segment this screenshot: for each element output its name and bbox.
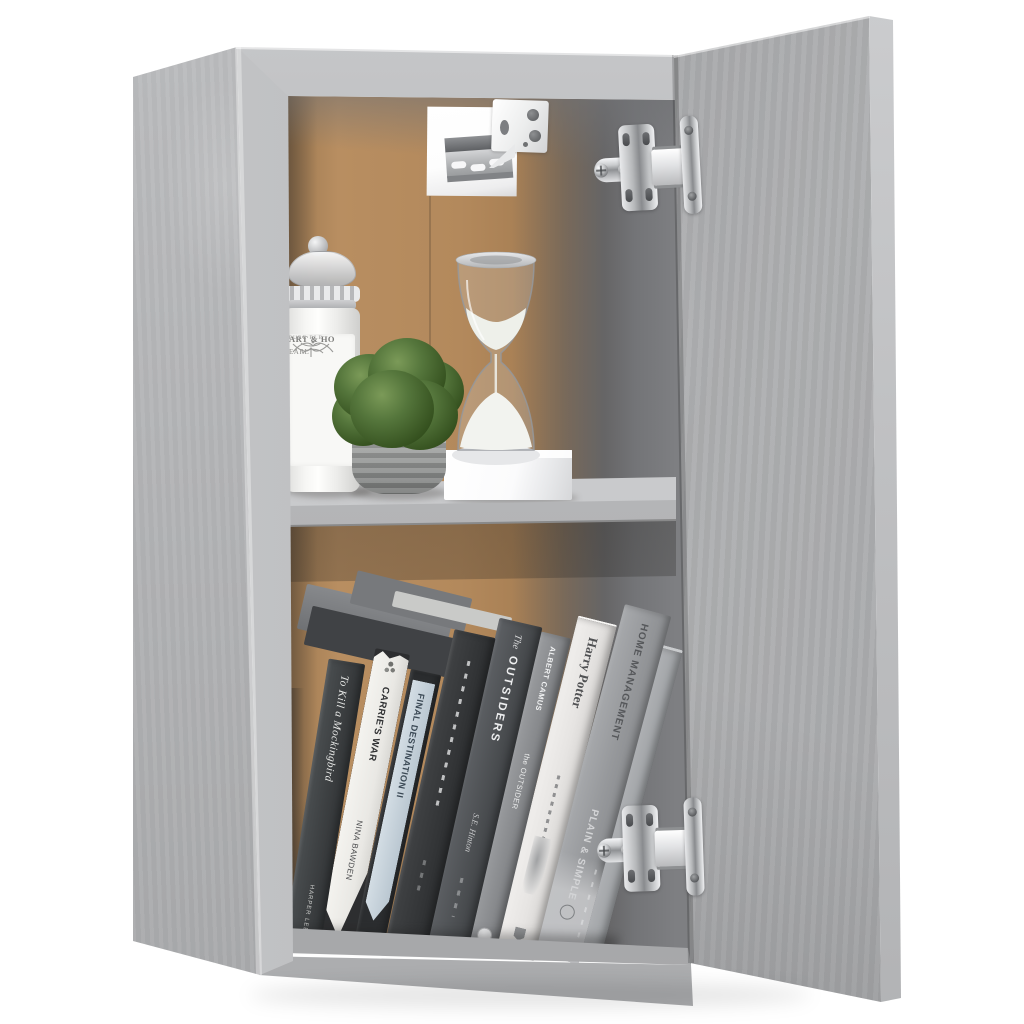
- potted-plant: [324, 338, 466, 496]
- bracket-screw-dot: [523, 142, 528, 147]
- book-small-print: [452, 878, 464, 918]
- bracket-hole: [529, 130, 541, 142]
- book-author: ALBERT CAMUS: [533, 646, 557, 712]
- book-author: NINA BAWDEN: [344, 819, 365, 881]
- hinge-hole: [684, 126, 693, 135]
- book-small-print: [416, 860, 426, 894]
- book-author: S.E. Hinton: [463, 813, 482, 854]
- book-title: CARRIE'S WAR: [366, 686, 391, 763]
- book-cover-illustration: [521, 835, 552, 896]
- book-title: the OUTSIDER: [510, 753, 532, 811]
- book-crest-icon: [381, 658, 398, 676]
- hinge-door-plate: [683, 797, 704, 896]
- bracket-hole: [527, 109, 539, 121]
- hinge-slot: [625, 189, 633, 202]
- hinge-slot: [622, 133, 630, 146]
- book-title: To Kill a Mockingbird: [322, 674, 351, 782]
- door-hinge-bottom: [595, 789, 709, 905]
- ground-shadow: [250, 982, 810, 1008]
- hinge-slot: [626, 814, 633, 827]
- rail-slot: [470, 164, 485, 172]
- wall-bracket: [492, 100, 550, 170]
- bracket-oval-hole: [500, 120, 509, 135]
- book-title: Harry Potter: [568, 636, 601, 710]
- hinge-slot: [648, 869, 655, 882]
- book-title-prefix: The: [510, 633, 524, 650]
- hinge-slot: [645, 188, 653, 201]
- rail-slot: [451, 161, 466, 169]
- jar-glass-lid: [288, 251, 356, 288]
- hinge-hole: [687, 192, 696, 201]
- book-author: HARPER LEE: [301, 884, 314, 932]
- book-title: OUTSIDERS: [487, 654, 519, 744]
- hinge-slot: [642, 132, 650, 145]
- book-script-subtitle: [542, 775, 560, 838]
- door-hinge-top: [591, 107, 707, 225]
- hinge-slot: [628, 870, 635, 883]
- hinge-slot: [646, 813, 653, 826]
- product-photo-stage: ART & HO PURE BLE EARL: [0, 0, 1024, 1024]
- hinge-hole: [688, 807, 697, 816]
- hinge-door-plate: [679, 115, 702, 214]
- hinge-hole: [690, 873, 699, 882]
- foliage: [350, 370, 434, 448]
